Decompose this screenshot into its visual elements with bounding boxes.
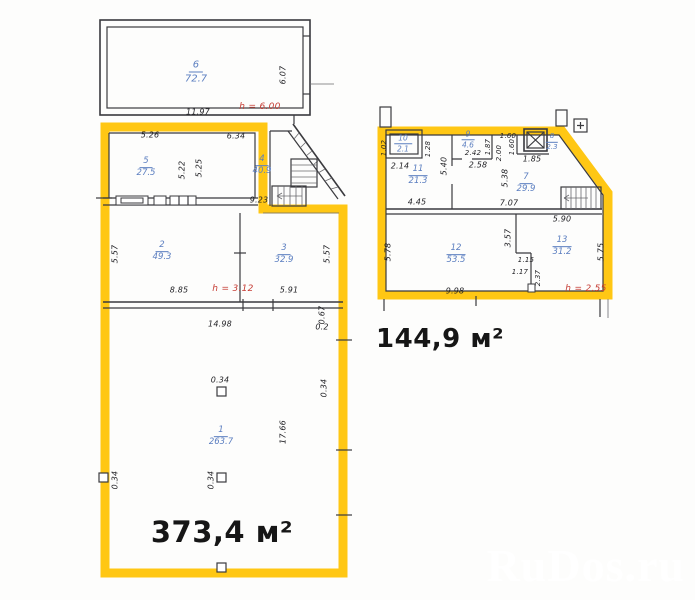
- dim-578: 5.78: [384, 243, 393, 262]
- dim-634: 6.34: [227, 132, 246, 141]
- room-13-label: 13 31.2: [553, 236, 572, 258]
- highlight-left-outline: [105, 127, 343, 573]
- floorplan-linework: [0, 0, 695, 600]
- height-label-23: h = 3.12: [212, 284, 253, 294]
- left-area-label: 373,4 м²: [151, 515, 293, 549]
- height-label-1213: h = 2.55: [565, 284, 606, 294]
- room-10-label: 10 2.1: [394, 134, 412, 154]
- dim-590: 5.90: [553, 215, 572, 224]
- dim-117: 1.17: [512, 268, 528, 276]
- column: [217, 387, 226, 396]
- dim-115: 1.15: [518, 256, 534, 264]
- dim-128: 1.28: [424, 141, 432, 157]
- room-9-label: 9 4.6: [462, 130, 475, 150]
- diagonal-hatch: [294, 133, 338, 189]
- room-12-label: 12 53.5: [447, 244, 466, 266]
- dim-557-right: 5.57: [323, 245, 332, 264]
- dim-200: 2.00: [495, 145, 503, 161]
- room-6-label: 6 72.7: [185, 60, 207, 85]
- dim-522: 5.22: [178, 161, 187, 180]
- room-5-label: 5 27.5: [137, 157, 156, 179]
- plus-marker-icon: [574, 119, 587, 132]
- dim-923: 9.23: [250, 196, 269, 205]
- room-4-label: 4 40.9: [253, 155, 272, 177]
- dim-102: 1.02: [380, 140, 388, 156]
- dim-034-c: 0.34: [207, 471, 216, 490]
- dim-445: 4.45: [408, 198, 427, 207]
- dim-525: 5.25: [195, 159, 204, 178]
- dim-242: 2.42: [465, 149, 481, 157]
- room-3-label: 3 32.9: [275, 244, 294, 266]
- dim-1498: 14.98: [208, 320, 232, 329]
- dim-540: 5.40: [440, 157, 449, 176]
- room-8-label: 8 2.3: [546, 133, 558, 151]
- dim-998: 9.98: [446, 287, 465, 296]
- dim-034-b: 0.34: [111, 471, 120, 490]
- dim-526: 5.26: [141, 131, 160, 140]
- dim-187: 1.87: [484, 139, 492, 155]
- dim-034-a: 0.34: [211, 376, 230, 385]
- right-area-label: 144,9 м²: [376, 324, 504, 354]
- room-7-label: 7 29.9: [517, 173, 536, 195]
- room-11-label: 11 21.3: [409, 165, 428, 187]
- dim-357: 3.57: [504, 229, 513, 248]
- dim-214: 2.14: [391, 162, 410, 171]
- rooms1213-partition: [384, 214, 608, 318]
- elevator-icon: [524, 129, 547, 151]
- dim-160-b: 1.60: [508, 139, 516, 155]
- dim-034-d: 0.34: [320, 379, 329, 398]
- dim-02: 0.2: [315, 323, 328, 332]
- column: [217, 473, 226, 482]
- dim-707: 7.07: [500, 199, 519, 208]
- column: [99, 473, 108, 482]
- dim-591: 5.91: [280, 286, 299, 295]
- dim-258: 2.58: [469, 161, 488, 170]
- dim-557-left: 5.57: [111, 245, 120, 264]
- dim-1197: 11.97: [186, 108, 210, 117]
- floorplan-image: 6 72.7 11.97 h = 6.00 6.07 5.26 5 27.5 5…: [0, 0, 695, 600]
- column: [217, 563, 226, 572]
- height-label-6: h = 6.00: [239, 102, 280, 112]
- room6-walls: [100, 20, 334, 124]
- stairs-right-icon: [561, 187, 601, 209]
- dim-1766: 17.66: [279, 420, 288, 444]
- watermark: RuDos.ru: [487, 539, 685, 592]
- rooms23-walls: [103, 213, 343, 311]
- dim-185: 1.85: [523, 155, 542, 164]
- dim-237: 2.37: [534, 270, 542, 286]
- dim-575: 5.75: [597, 243, 606, 262]
- stairs-left-icon: [272, 159, 317, 206]
- room-1-label: 1 263.7: [209, 426, 233, 448]
- room-2-label: 2 49.3: [153, 241, 172, 263]
- dim-607: 6.07: [279, 66, 288, 85]
- dim-885: 8.85: [170, 286, 189, 295]
- dim-538: 5.38: [501, 169, 510, 188]
